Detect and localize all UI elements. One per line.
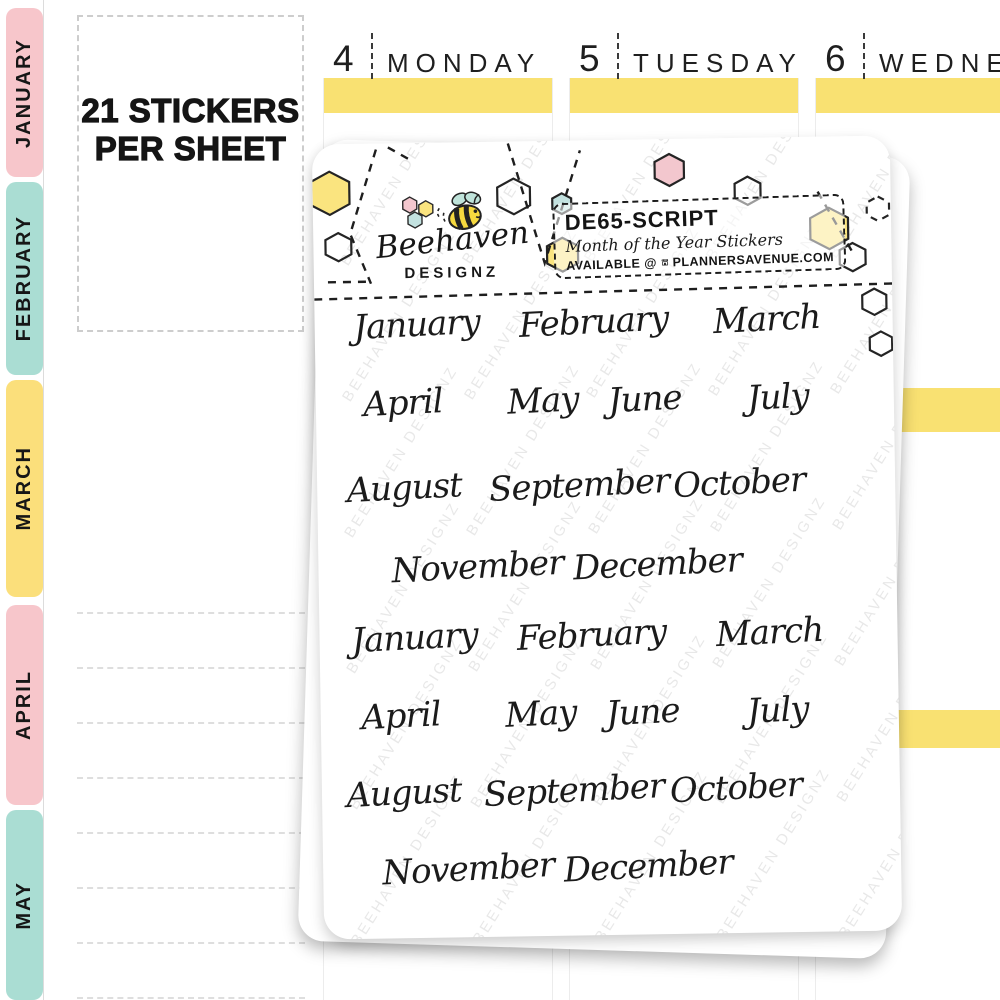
month-tab-march: MARCH (6, 380, 43, 597)
month-sticker-september: September (488, 461, 670, 510)
storefront-icon (661, 255, 669, 270)
month-tab-february: FEBRUARY (6, 182, 43, 375)
brand-logo: Beehaven DESIGNZ (371, 187, 532, 286)
day-header: 5TUESDAY (569, 30, 799, 80)
sticker-sheet: BEEHAVEN DESIGNZBEEHAVEN DESIGNZBEEHAVEN… (312, 136, 902, 940)
day-name: TUESDAY (633, 48, 803, 79)
month-sticker-january: January (352, 302, 480, 348)
month-sticker-december: December (572, 540, 743, 588)
sticker-count-note: 21 STICKERS PER SHEET (77, 92, 304, 168)
month-sticker-may: May (506, 379, 579, 423)
month-tab-april: APRIL (6, 605, 43, 805)
product-photo: { "note": { "line1": "21 STICKERS", "lin… (0, 0, 1000, 1000)
month-tab-label: MAY (13, 881, 36, 930)
ruled-line (77, 997, 305, 999)
month-sticker-january: January (350, 615, 478, 661)
month-sticker-december: December (563, 842, 734, 890)
month-sticker-november: November (391, 543, 565, 592)
month-sticker-july: July (746, 376, 810, 419)
month-tab-label: JANUARY (13, 38, 36, 148)
day-divider (371, 33, 373, 79)
month-tab-may: MAY (6, 810, 43, 1000)
month-sticker-march: March (712, 297, 821, 342)
month-sticker-february: February (516, 611, 667, 659)
month-sticker-april: April (360, 694, 441, 738)
day-name: WEDNESDAY (879, 48, 1000, 79)
day-name: MONDAY (387, 48, 541, 79)
month-sticker-august: August (345, 770, 462, 816)
month-sticker-september: September (483, 766, 665, 815)
product-info-box: DE65-SCRIPT Month of the Year Stickers A… (552, 194, 846, 280)
month-sticker-may: May (504, 692, 577, 736)
ruled-line (77, 887, 305, 889)
month-sticker-june: June (607, 378, 682, 422)
month-sticker-april: April (362, 381, 443, 425)
month-tab-label: FEBRUARY (13, 215, 36, 341)
month-sticker-november: November (381, 845, 555, 894)
day-number: 6 (825, 38, 846, 80)
day-number: 4 (333, 38, 354, 80)
ruled-line (77, 722, 305, 724)
availability-label: AVAILABLE @ (566, 255, 657, 272)
planner-page-edge (43, 0, 44, 1000)
ruled-line (77, 667, 305, 669)
day-divider (617, 33, 619, 79)
day-divider (863, 33, 865, 79)
brand-subname: DESIGNZ (372, 263, 532, 283)
column-highlight-bar (570, 78, 798, 113)
month-sticker-june: June (605, 691, 680, 735)
ruled-line (77, 942, 305, 944)
store-name: PLANNERSAVENUE.COM (672, 250, 834, 269)
month-sticker-july: July (746, 689, 810, 732)
day-header: 6WEDNESDAY (815, 30, 1000, 80)
month-sticker-august: August (346, 465, 463, 511)
column-highlight-bar (816, 78, 1000, 113)
month-sticker-october: October (672, 460, 806, 507)
sticker-count-note-box (77, 15, 304, 332)
note-line-2: PER SHEET (95, 130, 287, 167)
month-sticker-february: February (518, 298, 669, 346)
day-header: 4MONDAY (323, 30, 553, 80)
hexagon-shape (870, 331, 893, 356)
ruled-line (77, 832, 305, 834)
ruled-line (77, 612, 305, 614)
month-tab-january: JANUARY (6, 8, 43, 177)
month-sticker-october: October (669, 765, 803, 812)
month-tab-label: APRIL (13, 670, 36, 740)
ruled-line (77, 777, 305, 779)
note-line-1: 21 STICKERS (81, 92, 299, 129)
month-tab-label: MARCH (13, 446, 36, 530)
column-highlight-bar (324, 78, 552, 113)
month-sticker-march: March (715, 610, 824, 655)
day-number: 5 (579, 38, 600, 80)
